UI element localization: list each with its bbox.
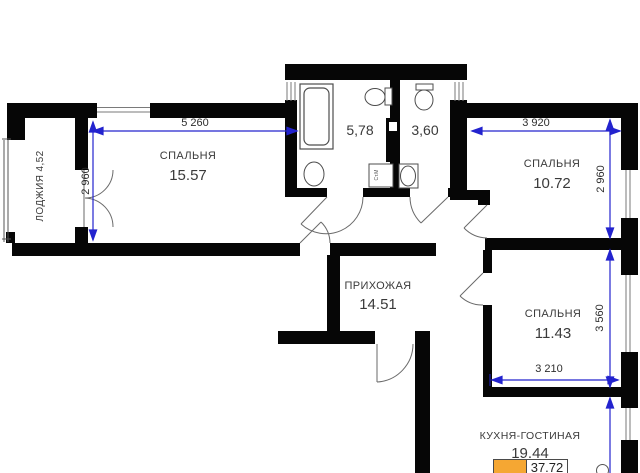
room-area-bedroom1: 15.57 xyxy=(128,167,248,184)
room-label-loggia: ЛОДЖИЯ 4,52 xyxy=(35,131,49,241)
dim-bedroom2-height: 2 960 xyxy=(595,157,609,201)
total-area-legend: 37.72 xyxy=(493,459,568,473)
linework-layer xyxy=(0,0,640,473)
dim-bedroom2-width: 3 920 xyxy=(501,117,571,130)
sink xyxy=(304,162,324,186)
total-area-value: 37.72 xyxy=(527,459,568,473)
dim-bedroom3-width: 3 210 xyxy=(514,363,584,376)
washing-machine-label: Ст.М xyxy=(374,165,388,185)
room-name-bedroom2: СПАЛЬНЯ xyxy=(492,158,612,171)
room-area-bath2: 3,60 xyxy=(395,122,455,138)
room-area-bath1: 5,78 xyxy=(330,122,390,138)
toilet xyxy=(365,88,392,106)
sink xyxy=(399,164,418,188)
doors xyxy=(84,170,487,382)
loggia-glazing xyxy=(2,139,11,242)
bathtub xyxy=(300,84,333,149)
dim-bedroom1-width: 5 260 xyxy=(160,117,230,130)
room-area-bedroom2: 10.72 xyxy=(492,175,612,192)
room-name-hallway: ПРИХОЖАЯ xyxy=(318,280,438,293)
dim-bedroom1-height: 2 960 xyxy=(80,159,94,203)
legend-swatch xyxy=(493,459,527,473)
room-area-hallway: 14.51 xyxy=(318,296,438,313)
room-name-bedroom1: СПАЛЬНЯ xyxy=(128,150,248,163)
dim-bedroom3-height: 3 560 xyxy=(594,296,608,340)
floor-plan: ЛОДЖИЯ 4,52 СПАЛЬНЯ 15.57 5,78 3,60 СПАЛ… xyxy=(0,0,640,473)
kitchen-fixture xyxy=(596,464,609,473)
toilet xyxy=(415,84,433,110)
room-name-kitchen: КУХНЯ-ГОСТИНАЯ xyxy=(450,430,610,442)
